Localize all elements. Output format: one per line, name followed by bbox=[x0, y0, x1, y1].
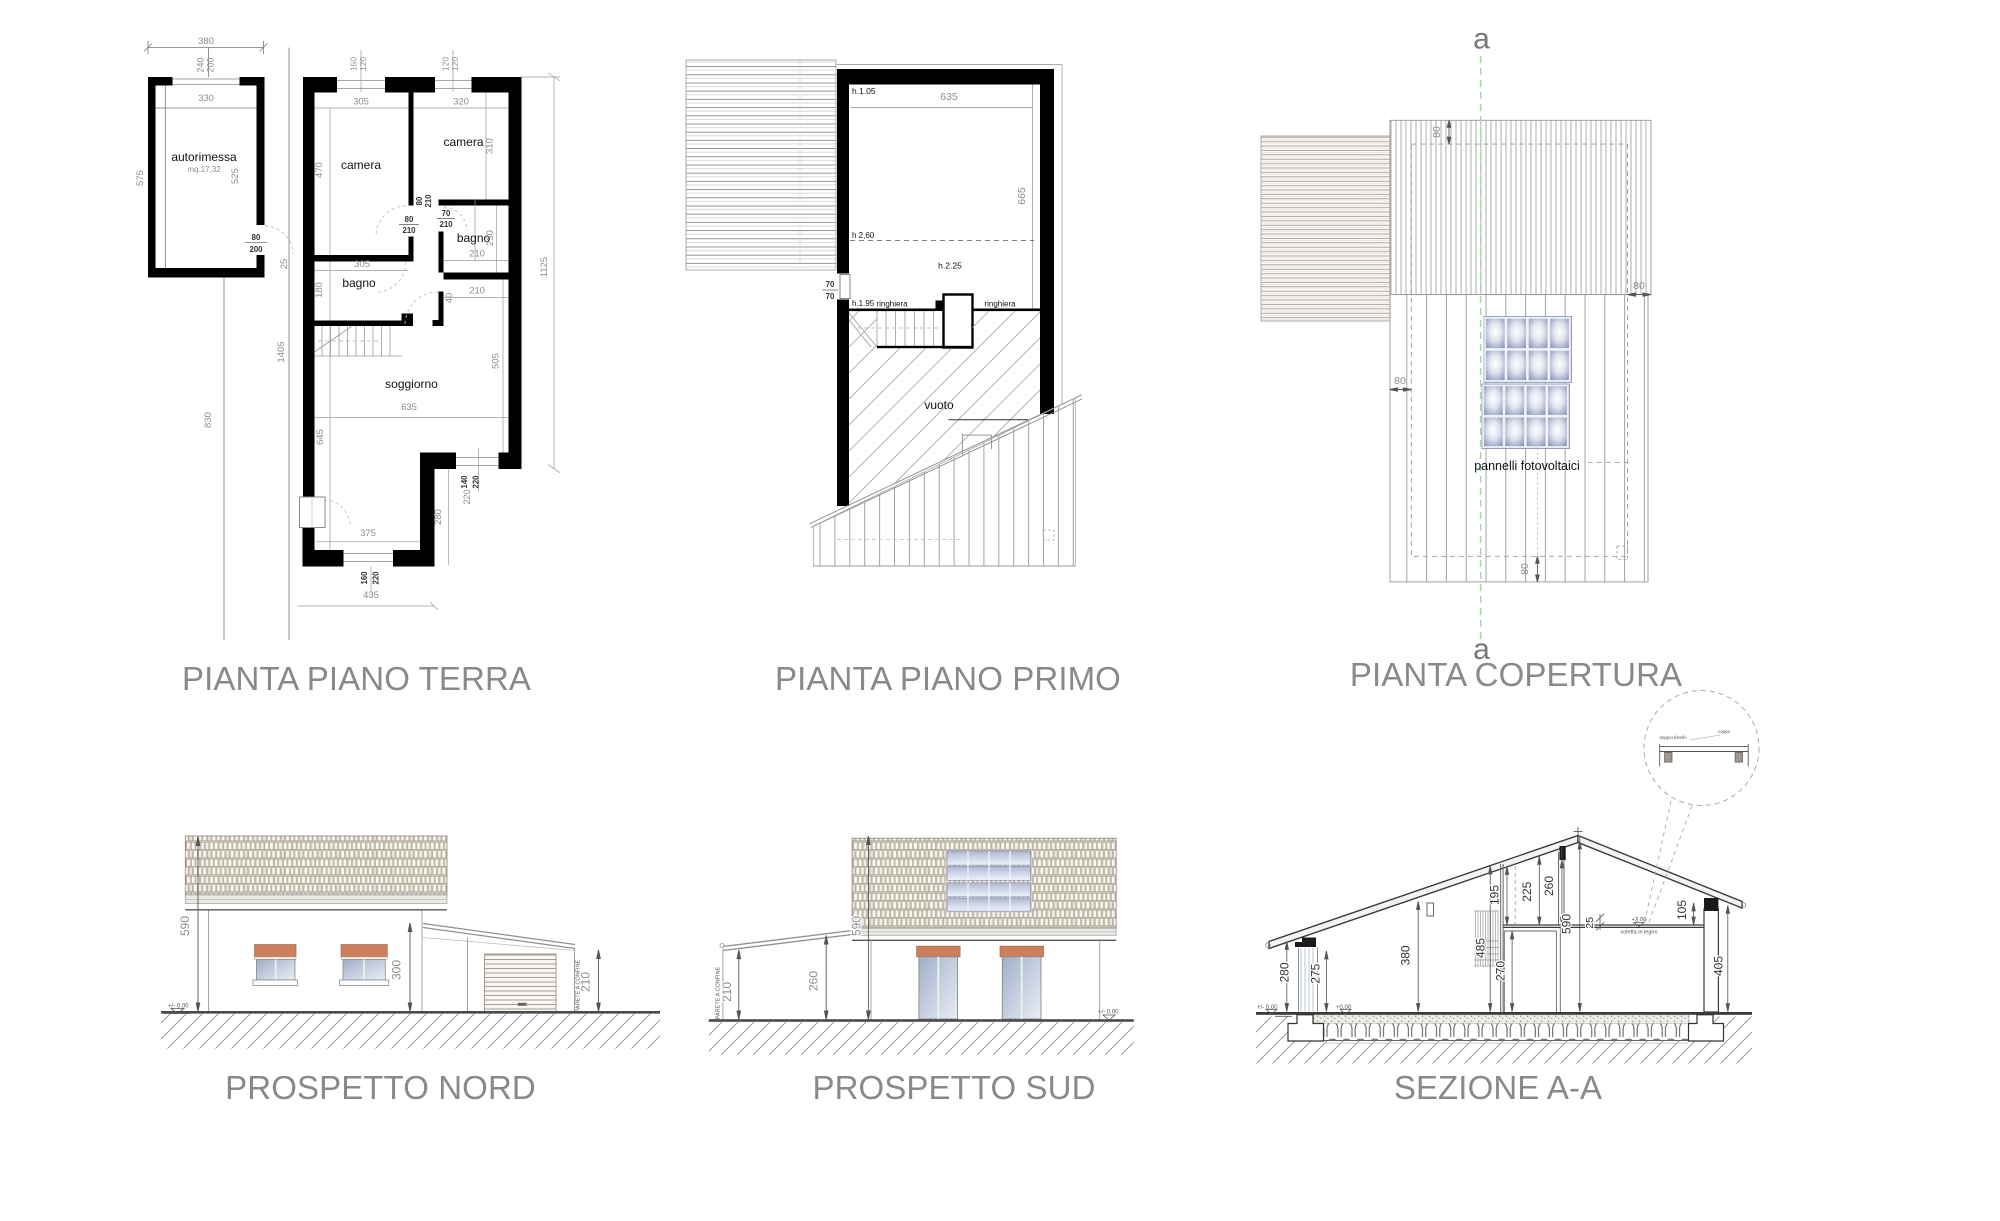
svg-text:830: 830 bbox=[203, 412, 214, 428]
svg-text:ringhiera: ringhiera bbox=[876, 300, 908, 309]
svg-text:305: 305 bbox=[353, 97, 369, 108]
svg-text:470: 470 bbox=[314, 162, 325, 178]
svg-text:PARETE A CONFINE: PARETE A CONFINE bbox=[716, 966, 722, 1019]
svg-text:1125: 1125 bbox=[539, 257, 550, 277]
svg-text:120: 120 bbox=[450, 57, 460, 71]
svg-text:105: 105 bbox=[1675, 900, 1689, 920]
svg-text:PIANTA PIANO PRIMO: PIANTA PIANO PRIMO bbox=[775, 660, 1121, 697]
svg-text:310: 310 bbox=[485, 138, 496, 154]
svg-text:soletta in legno: soletta in legno bbox=[1621, 930, 1658, 936]
svg-text:80: 80 bbox=[1394, 375, 1406, 387]
svg-text:220: 220 bbox=[462, 489, 472, 504]
svg-text:+/- 0.00: +/- 0.00 bbox=[1257, 1005, 1278, 1011]
svg-text:305: 305 bbox=[354, 259, 370, 270]
svg-text:PIANTA PIANO TERRA: PIANTA PIANO TERRA bbox=[182, 660, 531, 697]
svg-text:120: 120 bbox=[358, 57, 368, 71]
svg-text:PARETE A CONFINE: PARETE A CONFINE bbox=[576, 959, 582, 1012]
svg-text:210: 210 bbox=[469, 286, 485, 297]
svg-text:h 2,60: h 2,60 bbox=[852, 231, 875, 240]
svg-text:380: 380 bbox=[1399, 945, 1413, 965]
svg-text:120: 120 bbox=[441, 57, 451, 71]
svg-text:pannelli fotovoltaici: pannelli fotovoltaici bbox=[1474, 459, 1580, 473]
svg-text:70: 70 bbox=[826, 280, 835, 289]
svg-text:soggiorno: soggiorno bbox=[385, 377, 438, 391]
svg-text:575: 575 bbox=[135, 170, 146, 186]
svg-text:1405: 1405 bbox=[276, 341, 287, 362]
svg-text:80: 80 bbox=[415, 196, 424, 205]
svg-text:270: 270 bbox=[1494, 961, 1508, 981]
svg-text:665: 665 bbox=[1016, 187, 1028, 205]
svg-text:ringhiera: ringhiera bbox=[984, 300, 1016, 309]
svg-text:590: 590 bbox=[850, 916, 864, 936]
svg-text:230: 230 bbox=[485, 230, 496, 246]
svg-text:h.2.25: h.2.25 bbox=[938, 261, 962, 271]
svg-text:435: 435 bbox=[363, 590, 379, 601]
svg-text:380: 380 bbox=[198, 36, 214, 47]
svg-text:camera: camera bbox=[443, 135, 483, 149]
svg-text:doppio listello: doppio listello bbox=[1659, 735, 1687, 740]
svg-text:140: 140 bbox=[460, 475, 469, 489]
svg-text:70: 70 bbox=[442, 209, 451, 218]
svg-text:a: a bbox=[1473, 23, 1490, 56]
svg-text:590: 590 bbox=[1560, 914, 1574, 934]
svg-text:180: 180 bbox=[314, 282, 325, 298]
svg-text:+0.00: +0.00 bbox=[1336, 1005, 1352, 1011]
svg-text:80: 80 bbox=[252, 233, 261, 242]
svg-text:70: 70 bbox=[826, 292, 835, 301]
svg-text:25: 25 bbox=[1584, 917, 1596, 929]
svg-text:bagno: bagno bbox=[342, 276, 376, 290]
svg-text:525: 525 bbox=[230, 168, 241, 184]
svg-text:h.1.95: h.1.95 bbox=[852, 299, 875, 308]
svg-text:200: 200 bbox=[249, 245, 263, 254]
svg-text:210: 210 bbox=[424, 194, 433, 208]
svg-text:80: 80 bbox=[405, 215, 414, 224]
svg-text:SEZIONE A-A: SEZIONE A-A bbox=[1394, 1069, 1602, 1106]
svg-text:PIANTA COPERTURA: PIANTA COPERTURA bbox=[1350, 656, 1682, 693]
svg-text:210: 210 bbox=[439, 220, 453, 229]
svg-text:h.1.05: h.1.05 bbox=[852, 86, 876, 96]
svg-text:210: 210 bbox=[469, 249, 485, 260]
svg-text:220: 220 bbox=[472, 475, 481, 489]
svg-text:160: 160 bbox=[360, 571, 369, 585]
svg-text:280: 280 bbox=[433, 509, 444, 525]
svg-text:505: 505 bbox=[491, 353, 502, 369]
svg-text:405: 405 bbox=[1711, 956, 1725, 976]
svg-text:210: 210 bbox=[402, 226, 416, 235]
svg-text:195: 195 bbox=[1488, 885, 1502, 905]
svg-text:225: 225 bbox=[1520, 881, 1534, 901]
svg-text:485: 485 bbox=[1474, 938, 1488, 958]
svg-text:camera: camera bbox=[341, 158, 381, 172]
svg-text:260: 260 bbox=[1542, 876, 1556, 896]
svg-text:645: 645 bbox=[315, 429, 326, 445]
svg-text:200: 200 bbox=[206, 57, 216, 72]
svg-text:300: 300 bbox=[390, 960, 404, 980]
svg-text:220: 220 bbox=[372, 571, 381, 585]
svg-text:150: 150 bbox=[349, 57, 359, 71]
svg-text:320: 320 bbox=[453, 97, 469, 108]
svg-text:635: 635 bbox=[940, 91, 958, 103]
svg-text:330: 330 bbox=[198, 93, 214, 104]
svg-text:mq.17,32: mq.17,32 bbox=[187, 165, 221, 174]
svg-text:275: 275 bbox=[1308, 963, 1322, 983]
svg-text:vuoto: vuoto bbox=[924, 398, 954, 412]
svg-text:80: 80 bbox=[1519, 563, 1531, 575]
svg-text:635: 635 bbox=[401, 402, 417, 413]
svg-text:80: 80 bbox=[1633, 280, 1645, 292]
svg-text:80: 80 bbox=[1431, 126, 1443, 138]
svg-text:autorimessa: autorimessa bbox=[171, 150, 237, 164]
svg-text:590: 590 bbox=[178, 916, 192, 936]
svg-text:PROSPETTO NORD: PROSPETTO NORD bbox=[225, 1069, 536, 1106]
svg-text:PROSPETTO SUD: PROSPETTO SUD bbox=[812, 1069, 1095, 1106]
svg-text:375: 375 bbox=[360, 528, 376, 539]
svg-text:240: 240 bbox=[196, 57, 206, 72]
svg-text:25: 25 bbox=[279, 259, 290, 270]
svg-text:40: 40 bbox=[444, 293, 455, 304]
svg-text:280: 280 bbox=[1278, 962, 1292, 982]
svg-text:260: 260 bbox=[807, 971, 821, 991]
svg-text:210: 210 bbox=[720, 982, 734, 1002]
svg-text:coppo: coppo bbox=[1718, 729, 1731, 734]
